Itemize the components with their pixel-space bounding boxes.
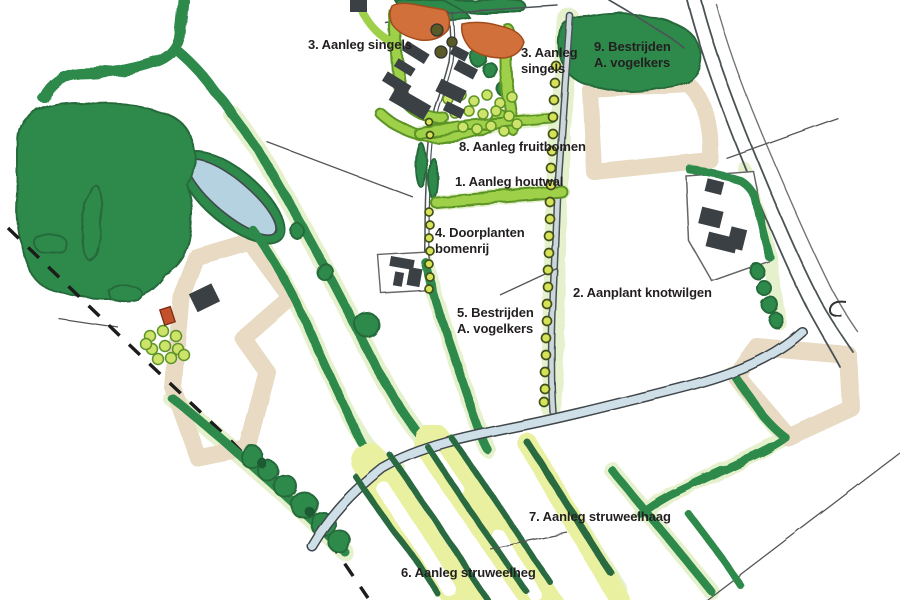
barn-top <box>350 0 367 12</box>
hedgerow-center-b <box>425 262 488 450</box>
label-4-doorplanten: 4. Doorplanten bomenrij <box>435 225 525 256</box>
label-text: 9. Bestrijden <box>594 39 671 55</box>
small-grove-b <box>108 285 142 301</box>
small-grove-a <box>35 235 67 254</box>
label-9-bestrijden: 9. Bestrijden A. vogelkers <box>594 39 671 70</box>
label-3-singels-center: 3. Aanleg singels <box>521 45 577 76</box>
label-text: 3. Aanleg <box>521 45 577 61</box>
landscape-plan-map: 3. Aanleg singels 3. Aanleg singels 9. B… <box>0 0 900 600</box>
label-text: 1. Aanleg houtwal <box>455 174 563 190</box>
label-5-bestrijden: 5. Bestrijden A. vogelkers <box>457 305 534 336</box>
label-8-fruitbomen: 8. Aanleg fruitbomen <box>459 139 586 155</box>
label-6-struweelheg: 6. Aanleg struweelheg <box>401 565 536 581</box>
main-road-edge-3 <box>716 4 858 332</box>
hedgerow-northwest-y <box>44 0 183 98</box>
map-drawing <box>0 0 900 600</box>
label-3-singels-west: 3. Aanleg singels <box>308 37 412 53</box>
label-text: A. vogelkers <box>457 321 534 337</box>
label-text: 6. Aanleg struweelheg <box>401 565 536 581</box>
label-text: bomenrij <box>435 241 525 257</box>
label-text: 2. Aanplant knotwilgen <box>573 285 712 301</box>
label-text: 3. Aanleg singels <box>308 37 412 53</box>
footpath-loop-west <box>173 242 290 458</box>
label-text: 8. Aanleg fruitbomen <box>459 139 586 155</box>
label-text: 5. Bestrijden <box>457 305 534 321</box>
label-2-knotwilgen: 2. Aanplant knotwilgen <box>573 285 712 301</box>
label-7-struweelhaag: 7. Aanleg struweelhaag <box>529 509 671 525</box>
woods-west <box>17 103 194 299</box>
footpath-loop-northeast <box>590 84 710 172</box>
label-text: 4. Doorplanten <box>435 225 525 241</box>
label-text: 7. Aanleg struweelhaag <box>529 509 671 525</box>
label-text: singels <box>521 61 577 77</box>
label-text: A. vogelkers <box>594 55 671 71</box>
label-1-houtwal: 1. Aanleg houtwal <box>455 174 563 190</box>
